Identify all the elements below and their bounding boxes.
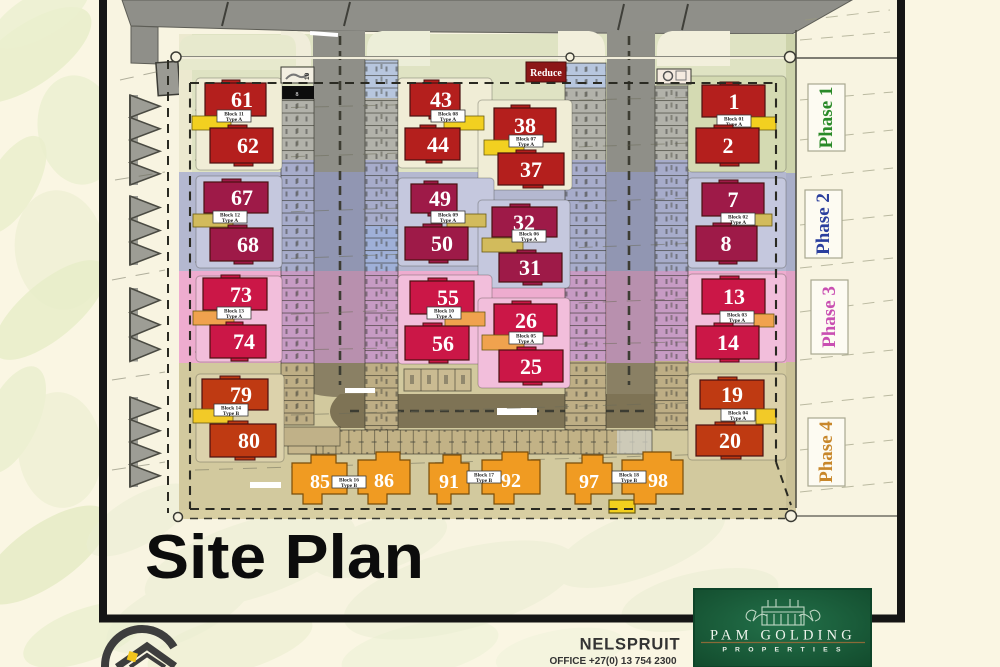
svg-text:Type A: Type A <box>436 314 452 320</box>
svg-text:44: 44 <box>427 132 449 157</box>
svg-text:Type A: Type A <box>440 218 456 224</box>
svg-text:Type B: Type B <box>621 478 638 484</box>
svg-text:Type B: Type B <box>476 478 493 484</box>
svg-text:P R O P E R T I E S: P R O P E R T I E S <box>722 647 843 654</box>
svg-text:98: 98 <box>648 470 668 492</box>
svg-text:74: 74 <box>233 329 255 354</box>
svg-text:79: 79 <box>230 382 252 407</box>
svg-text:Type A: Type A <box>440 117 456 123</box>
svg-text:10: 10 <box>304 72 311 80</box>
svg-text:Type A: Type A <box>518 142 534 148</box>
svg-text:97: 97 <box>579 471 599 493</box>
svg-text:Phase 1: Phase 1 <box>816 87 837 149</box>
svg-text:1: 1 <box>729 89 740 114</box>
svg-text:20: 20 <box>719 428 741 453</box>
svg-text:61: 61 <box>231 87 253 112</box>
svg-text:92: 92 <box>501 470 521 492</box>
svg-text:19: 19 <box>721 382 743 407</box>
svg-text:Type A: Type A <box>518 339 534 345</box>
svg-text:91: 91 <box>439 471 459 493</box>
svg-text:7: 7 <box>728 187 739 212</box>
svg-text:62: 62 <box>237 133 259 158</box>
svg-text:Type A: Type A <box>521 237 537 243</box>
svg-text:85: 85 <box>310 471 330 493</box>
svg-text:56: 56 <box>432 331 454 356</box>
svg-text:14: 14 <box>717 330 739 355</box>
svg-text:13: 13 <box>723 284 745 309</box>
svg-text:Phase 3: Phase 3 <box>819 286 840 348</box>
svg-text:NELSPRUIT: NELSPRUIT <box>580 636 681 654</box>
svg-text:PAM GOLDING: PAM GOLDING <box>710 628 856 644</box>
svg-text:Type A: Type A <box>222 218 238 224</box>
svg-text:67: 67 <box>231 185 253 210</box>
svg-text:Reduce: Reduce <box>530 68 562 79</box>
svg-text:2: 2 <box>723 133 734 158</box>
svg-text:80: 80 <box>238 428 260 453</box>
svg-text:26: 26 <box>515 308 537 333</box>
svg-text:Type A: Type A <box>730 220 746 226</box>
svg-text:OFFICE +27(0) 13 754 2300: OFFICE +27(0) 13 754 2300 <box>549 656 676 667</box>
svg-text:Type B: Type B <box>341 483 358 489</box>
svg-text:Site Plan: Site Plan <box>145 523 424 592</box>
svg-text:Type A: Type A <box>226 117 242 123</box>
svg-text:Phase 2: Phase 2 <box>813 193 834 255</box>
svg-text:43: 43 <box>430 87 452 112</box>
svg-text:50: 50 <box>431 231 453 256</box>
svg-text:8: 8 <box>721 231 732 256</box>
svg-text:31: 31 <box>519 255 541 280</box>
svg-text:49: 49 <box>429 186 451 211</box>
svg-text:55: 55 <box>437 285 459 310</box>
svg-text:38: 38 <box>514 113 536 138</box>
svg-text:Phase 4: Phase 4 <box>816 421 837 483</box>
svg-text:86: 86 <box>374 470 394 492</box>
svg-text:Type A: Type A <box>226 314 242 320</box>
svg-text:Type B: Type B <box>223 411 240 417</box>
svg-text:25: 25 <box>520 354 542 379</box>
svg-text:68: 68 <box>237 232 259 257</box>
svg-text:73: 73 <box>230 282 252 307</box>
svg-text:37: 37 <box>520 157 542 182</box>
svg-text:8: 8 <box>296 92 299 98</box>
svg-text:Type A: Type A <box>730 416 746 422</box>
